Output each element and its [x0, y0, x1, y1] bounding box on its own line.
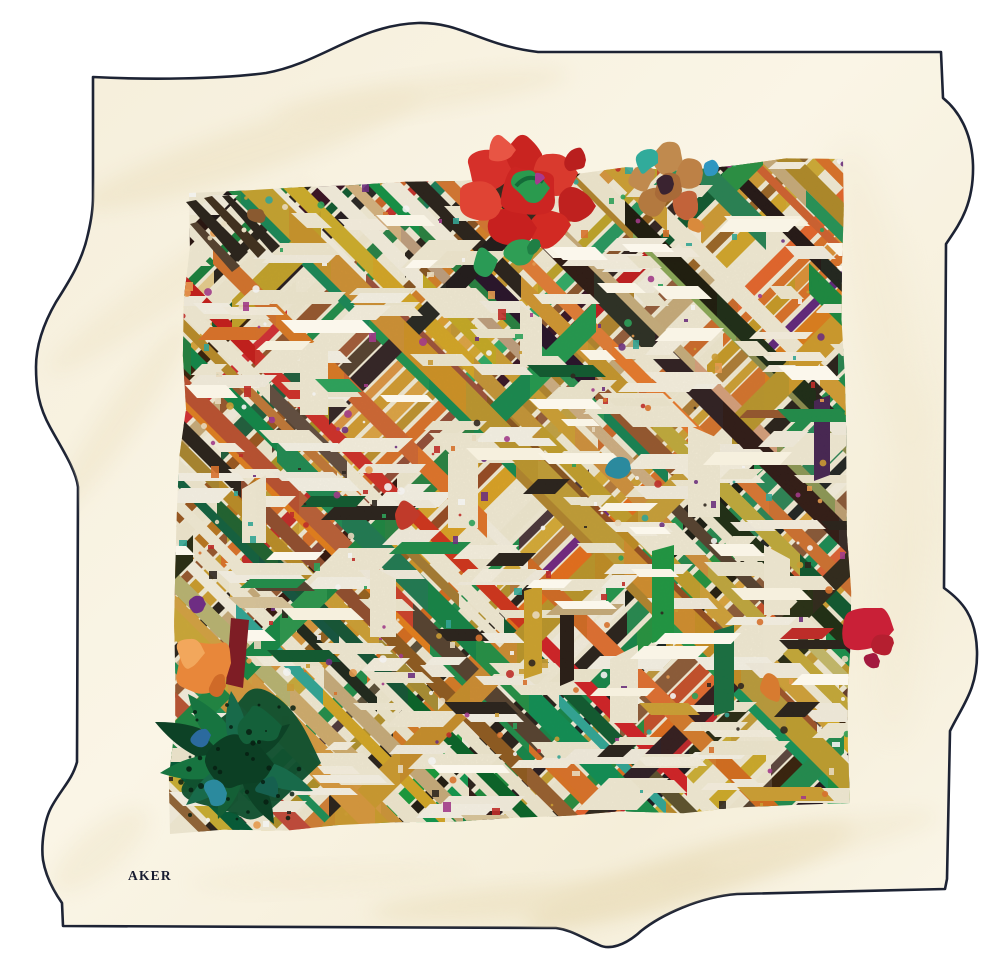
svg-text:AKER: AKER	[128, 868, 172, 883]
